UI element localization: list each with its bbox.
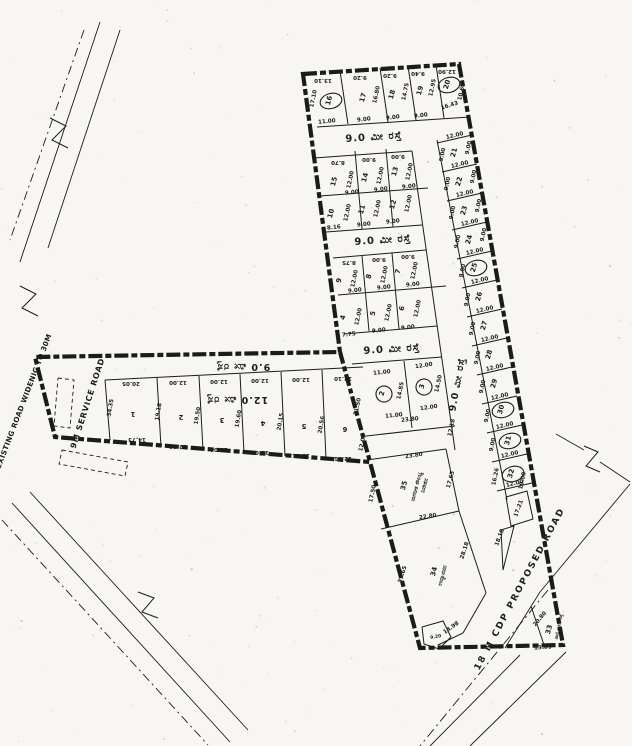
dimension-label: 9.00 (465, 140, 474, 155)
plan-line (392, 253, 399, 329)
dimension-label: 9.20 (383, 72, 397, 78)
plot-number: 7 (394, 268, 403, 275)
dimension-label: 12.00 (415, 362, 433, 370)
plan-line (362, 256, 369, 331)
road-label: 12.0 ಮೀ ರಸ್ತೆ (206, 393, 268, 405)
dimension-label: 34.35 (107, 398, 116, 417)
plot-number: 20 (442, 79, 452, 90)
dimension-label: 9.00 (391, 153, 405, 159)
dimension-label: 9.00 (345, 189, 359, 196)
dimension-label: 12.00 (485, 363, 504, 373)
dimension-label: 12.00 (480, 334, 499, 344)
dimension-label: 9.40 (411, 70, 425, 76)
dimension-label: 16.43 (440, 100, 459, 111)
plot-grid-lines (12, 22, 630, 746)
plan-line (463, 593, 486, 633)
plot-number: 15 (329, 176, 339, 187)
dimension-label: 12.10 (334, 375, 352, 381)
plot-number: 3 (418, 383, 427, 390)
plot-number: 4 (260, 419, 265, 427)
dimension-label: 9.20 (353, 74, 367, 80)
dimension-label: 19.18 (155, 402, 164, 421)
dimension-label: 12.00 (376, 166, 386, 185)
dimension-label: 9.00 (386, 114, 400, 121)
plot-number: 11 (357, 204, 367, 215)
plot-number: 19 (415, 85, 425, 96)
dimension-label: 12.00 (420, 404, 438, 412)
plan-line (344, 326, 437, 334)
dimension-label: 16.80 (372, 85, 382, 104)
plan-polyline (20, 286, 38, 316)
dimension-label: 9.00 (484, 408, 493, 423)
dimension-label: 9.00 (474, 350, 483, 365)
dimension-label: 12.00 (413, 299, 423, 318)
plot-number: 16 (324, 95, 334, 106)
plan-polyline (59, 450, 128, 476)
site-label: 9.20 (430, 633, 442, 641)
dimension-label: 12.00 (495, 421, 514, 431)
dimension-label: 12.00 (470, 276, 489, 286)
dimension-label: 14.85 (396, 381, 406, 400)
plot-number: 5 (301, 422, 306, 430)
dimension-label: 9.00 (454, 234, 463, 249)
dimension-label: 12.00 (373, 199, 383, 218)
dimension-label: 16.26 (491, 467, 501, 486)
plot-number: 32 (506, 468, 516, 479)
plot-number: 26 (474, 291, 484, 302)
dimension-label: 12.00 (210, 378, 228, 384)
dimension-label: 12.00 (410, 261, 420, 280)
dimension-label: 9.00 (459, 263, 468, 278)
dimension-label: 9.00 (475, 198, 484, 213)
dimension-label: 17.10 (309, 89, 319, 108)
road-label: 9.0 ಮೀ ರಸ್ತೆ (447, 357, 468, 413)
plot-number: 14 (360, 172, 370, 183)
plot-number: 29 (489, 378, 499, 389)
road-label: 9.0 ಮೀ ರಸ್ತೆ (363, 342, 421, 358)
plot-number: 12 (388, 199, 398, 210)
plot-number: 30 (496, 404, 506, 415)
plot-number: 34 (429, 566, 439, 577)
dimension-label: 12.04 (210, 446, 228, 452)
plot-number: 28 (484, 349, 494, 360)
dimension-label: 12.00 (169, 379, 187, 385)
plan-line (366, 426, 455, 436)
dimension-label: 17.65 (446, 470, 456, 489)
dimension-label: 12.18 (447, 418, 457, 437)
road-label: 9M SERVICE ROAD (69, 357, 107, 450)
dimension-label: 8.75 (342, 259, 356, 265)
centerline-dash-dot (2, 520, 208, 745)
dimension-label: 12.00 (460, 218, 479, 228)
plot-number: 23 (459, 205, 469, 216)
dimension-label: 9.00 (374, 186, 388, 193)
plot-number: 31 (503, 435, 513, 446)
dimension-label: 12.00 (292, 376, 310, 382)
dimension-label: 12.00 (380, 265, 390, 284)
plan-line (322, 370, 326, 459)
plot-number: 33 (544, 624, 554, 635)
plot-number: 22 (454, 176, 464, 187)
dimension-label: 9.00 (414, 112, 428, 119)
centerline-dash-dot (10, 30, 84, 240)
dimension-label: 12.04 (169, 443, 187, 449)
dimension-label: 12.00 (343, 203, 353, 222)
plot-number: 5 (369, 310, 378, 317)
dimension-label: 9.00 (372, 327, 386, 334)
dimension-label: 12.00 (445, 131, 464, 141)
dimension-label: 12.04 (251, 449, 269, 455)
plan-line (556, 434, 584, 450)
plan-polyline (584, 446, 600, 472)
dimension-label: 9.00 (357, 221, 371, 228)
site-label: ಉದ್ಯಾನವನ (437, 565, 449, 587)
plot-number: 10 (326, 208, 336, 219)
plan-line (48, 30, 120, 248)
dimension-label: 17.21 (513, 499, 525, 518)
dimension-label: 18.18 (494, 528, 506, 547)
plan-line (600, 462, 630, 482)
dimension-label: 9.00 (402, 183, 416, 190)
plot-number: 27 (479, 320, 489, 331)
dimension-label: 22.80 (419, 513, 438, 522)
plot-number: 21 (449, 147, 459, 158)
dimension-label: 9.00 (386, 218, 400, 225)
plot-number: 35 (399, 480, 409, 491)
dimension-label: 28.18 (459, 541, 470, 560)
dimension-label: 12.00 (350, 269, 360, 288)
dimension-label: 9.00 (469, 321, 478, 336)
dimension-label: 14.50 (434, 374, 444, 393)
dimension-label: 12.00 (405, 162, 415, 181)
scanned-layout-plan-page: 1617181920151413101112987456231234562122… (0, 0, 632, 746)
dimension-label: 12.00 (500, 450, 519, 460)
plot-number: 18 (387, 89, 397, 100)
plan-line (30, 492, 248, 730)
plan-polyline (138, 592, 158, 618)
dimension-label: 9.00 (480, 227, 489, 242)
dimension-label: 12.21 (292, 452, 310, 458)
dimension-label: 12.00 (404, 194, 414, 213)
dimension-label: 12.00 (251, 377, 269, 383)
plot-number: 4 (339, 314, 348, 321)
dimension-label: 9.00 (470, 169, 479, 184)
dimension-label: 9.00 (357, 116, 371, 123)
layout-plan-drawing: 1617181920151413101112987456231234562122… (0, 0, 632, 746)
dimension-label: 11.00 (318, 118, 336, 126)
dimension-label: 23.80 (405, 452, 423, 460)
plot-number: 6 (398, 305, 407, 312)
dimension-label: 12.95 (428, 78, 438, 97)
dimension-label: 23.80 (401, 416, 419, 424)
dimension-label: 9.00 (372, 256, 386, 262)
plot-number: 25 (469, 262, 479, 273)
dimension-label: 9.00 (439, 147, 448, 162)
plot-number: 17 (358, 92, 368, 103)
dimension-label: 9.00 (401, 324, 415, 331)
dimension-label: 7.75 (342, 331, 356, 338)
dimension-label: 10.00 (518, 471, 528, 490)
road-label: 9.0 ಮೀ ರಸ್ತೆ (354, 233, 412, 249)
plot-number: 1 (130, 410, 135, 418)
plan-polyline (50, 118, 68, 148)
plot-number: 6 (342, 425, 347, 433)
dimension-label: 8.70 (331, 159, 345, 165)
dimension-label: 12.00 (490, 392, 509, 402)
dimension-label: 12.00 (346, 170, 356, 189)
plan-line (20, 22, 100, 262)
dimension-label: 9.00 (406, 281, 420, 288)
dimension-label: 12.00 (450, 160, 469, 170)
plot-number: 9 (335, 277, 344, 284)
dimension-label: 20.05 (122, 380, 140, 386)
dimension-label: 14.98 (442, 621, 460, 636)
dimension-label: 12.00 (475, 305, 494, 315)
plot-number: 2 (178, 413, 183, 421)
road-label: 9.0 ಮೀ ರಸ್ತೆ (216, 360, 271, 372)
dimension-label: 14.75 (401, 82, 411, 101)
dimension-label: 13.10 (314, 77, 332, 83)
dimension-label: 9.00 (489, 437, 498, 452)
dimension-label: 9.00 (464, 292, 473, 307)
dimension-label: 12.00 (384, 303, 394, 322)
dimension-label: 14.73 (128, 436, 146, 442)
plot-number: 3 (219, 416, 224, 424)
plan-line (540, 484, 630, 592)
dimension-label: 12.90 (438, 68, 456, 74)
plan-line (12, 503, 230, 742)
dimension-label: 12.31 (334, 455, 352, 461)
dimension-label: 12.00 (465, 247, 484, 257)
road-label: 9.0 ಮೀ ರಸ್ತೆ (345, 130, 403, 146)
dimension-label: 9.00 (401, 253, 415, 259)
dimension-label: 9.00 (362, 156, 376, 162)
dimension-label: 11.00 (373, 369, 391, 377)
centerline-dash-dot (420, 590, 548, 746)
plot-number: 13 (390, 166, 400, 177)
plot-number: 24 (464, 234, 474, 245)
dimension-label: 12.00 (455, 189, 474, 199)
plot-number: 2 (378, 390, 387, 397)
dimension-label: 13.95 (534, 644, 552, 651)
plan-polyline (54, 378, 74, 428)
plot-number: 8 (365, 273, 374, 280)
dimension-label: 12.00 (354, 307, 364, 326)
